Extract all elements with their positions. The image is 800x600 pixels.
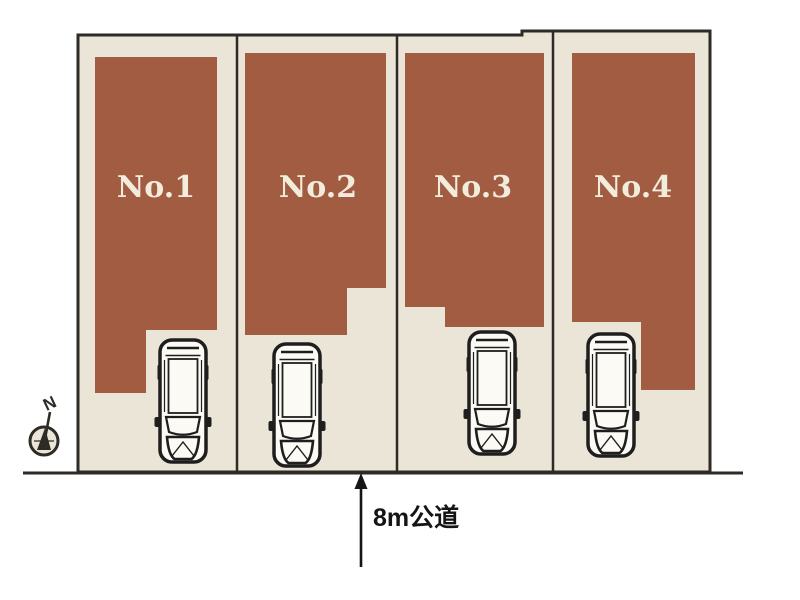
road-label: 8m公道 <box>373 503 459 532</box>
compass-n-label: N <box>40 392 59 414</box>
road-arrow-icon <box>355 473 368 567</box>
car-top-view-icon-lot4 <box>583 334 640 456</box>
car-top-view-icon-lot1 <box>155 340 212 462</box>
car-top-view-icon-lot3 <box>464 332 521 454</box>
lot-label-4: No.4 <box>594 170 672 205</box>
lot-label-1: No.1 <box>117 170 195 205</box>
car-top-view-icon-lot2 <box>269 344 326 466</box>
site-plan: No.1 No.2 No.3 No.4 N 8m公道 <box>0 0 800 600</box>
north-arrow-icon: N <box>30 392 59 455</box>
lot-label-2: No.2 <box>279 170 357 205</box>
site-plan-drawing: No.1 No.2 No.3 No.4 N 8m公道 <box>0 0 800 600</box>
lot-label-3: No.3 <box>434 170 512 205</box>
